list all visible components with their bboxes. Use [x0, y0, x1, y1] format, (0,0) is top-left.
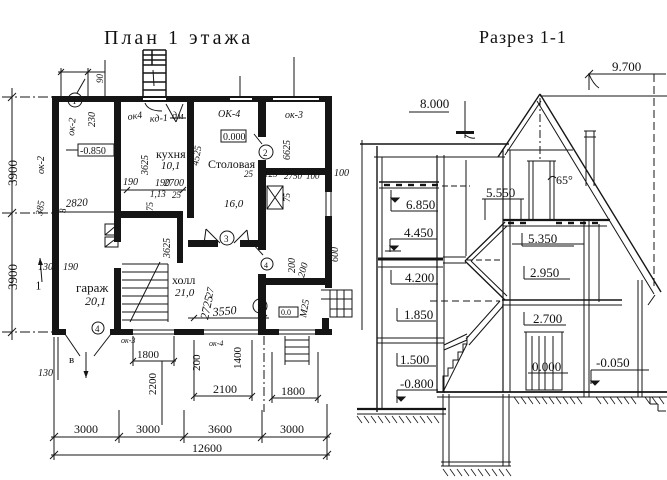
svg-text:90: 90	[95, 74, 105, 84]
svg-text:дм: дм	[172, 111, 184, 122]
svg-text:6625: 6625	[282, 140, 293, 160]
svg-text:2: 2	[263, 148, 268, 158]
svg-text:0.0: 0.0	[281, 308, 291, 317]
svg-text:1.850: 1.850	[404, 307, 433, 322]
svg-text:6.850: 6.850	[406, 197, 435, 212]
svg-text:230: 230	[87, 112, 98, 127]
svg-text:в: в	[69, 354, 74, 366]
svg-text:16,0: 16,0	[224, 198, 244, 210]
svg-text:100: 100	[306, 171, 320, 181]
svg-text:4: 4	[264, 261, 268, 270]
svg-text:25: 25	[172, 190, 182, 200]
svg-text:-0.050: -0.050	[596, 355, 630, 370]
svg-text:190: 190	[123, 177, 138, 188]
svg-text:Разрез 1-1: Разрез 1-1	[479, 27, 567, 47]
svg-text:холл: холл	[172, 273, 195, 287]
svg-text:5.550: 5.550	[486, 185, 515, 200]
svg-text:9.700: 9.700	[612, 59, 641, 74]
svg-text:190: 190	[63, 262, 78, 273]
svg-text:-0.800: -0.800	[400, 376, 434, 391]
svg-text:ок-2: ок-2	[36, 156, 47, 174]
svg-text:5.350: 5.350	[528, 231, 557, 246]
svg-text:0.000: 0.000	[223, 132, 246, 143]
svg-text:3000: 3000	[136, 422, 160, 436]
svg-text:кд-1: кд-1	[149, 113, 168, 125]
svg-text:3000: 3000	[280, 422, 304, 436]
svg-text:4: 4	[95, 324, 100, 334]
svg-text:2200: 2200	[147, 373, 159, 396]
svg-text:2750: 2750	[284, 171, 303, 181]
svg-text:кухня: кухня	[156, 147, 186, 161]
svg-text:ок4: ок4	[127, 110, 143, 123]
svg-text:1800: 1800	[281, 384, 305, 398]
svg-text:10,1: 10,1	[161, 160, 180, 172]
svg-text:75: 75	[282, 193, 292, 203]
svg-text:3900: 3900	[5, 160, 20, 186]
svg-text:4.200: 4.200	[405, 270, 434, 285]
svg-text:3: 3	[224, 234, 229, 244]
svg-text:600: 600	[330, 247, 341, 262]
svg-text:20,1: 20,1	[85, 294, 106, 308]
svg-text:125: 125	[264, 169, 278, 179]
svg-text:1: 1	[72, 96, 77, 106]
svg-text:8.000: 8.000	[420, 96, 449, 111]
svg-text:ОК-4: ОК-4	[218, 109, 240, 120]
svg-text:2820: 2820	[65, 196, 88, 210]
svg-text:2700: 2700	[164, 178, 184, 189]
svg-text:гараж: гараж	[76, 280, 109, 295]
svg-text:12600: 12600	[192, 441, 222, 455]
svg-text:План 1 этажа: План 1 этажа	[104, 27, 253, 49]
svg-text:200: 200	[191, 354, 203, 371]
svg-text:ок-3: ок-3	[285, 110, 303, 121]
svg-text:2.700: 2.700	[533, 311, 562, 326]
svg-text:3600: 3600	[208, 422, 232, 436]
svg-text:1: 1	[257, 302, 262, 312]
svg-text:3625: 3625	[162, 238, 173, 259]
svg-text:3625: 3625	[140, 155, 151, 176]
svg-text:1800: 1800	[137, 349, 160, 361]
svg-text:3900: 3900	[5, 264, 20, 290]
svg-text:21,0: 21,0	[175, 287, 195, 299]
svg-text:200: 200	[287, 258, 298, 273]
svg-text:3000: 3000	[74, 422, 98, 436]
svg-text:3550: 3550	[211, 303, 237, 319]
svg-text:-0.850: -0.850	[80, 146, 106, 157]
svg-text:ок-2: ок-2	[66, 117, 79, 136]
svg-text:65°: 65°	[556, 173, 573, 187]
svg-text:130: 130	[38, 368, 53, 379]
svg-text:2100: 2100	[213, 382, 237, 396]
svg-text:ок-4: ок-4	[209, 339, 223, 348]
svg-text:4.450: 4.450	[404, 225, 433, 240]
svg-text:0.000: 0.000	[532, 359, 561, 374]
svg-text:75: 75	[145, 202, 155, 212]
svg-text:2.950: 2.950	[530, 265, 559, 280]
svg-text:25: 25	[244, 169, 254, 179]
svg-text:1400: 1400	[232, 347, 244, 370]
svg-text:1.500: 1.500	[400, 352, 429, 367]
svg-text:100: 100	[334, 168, 349, 179]
